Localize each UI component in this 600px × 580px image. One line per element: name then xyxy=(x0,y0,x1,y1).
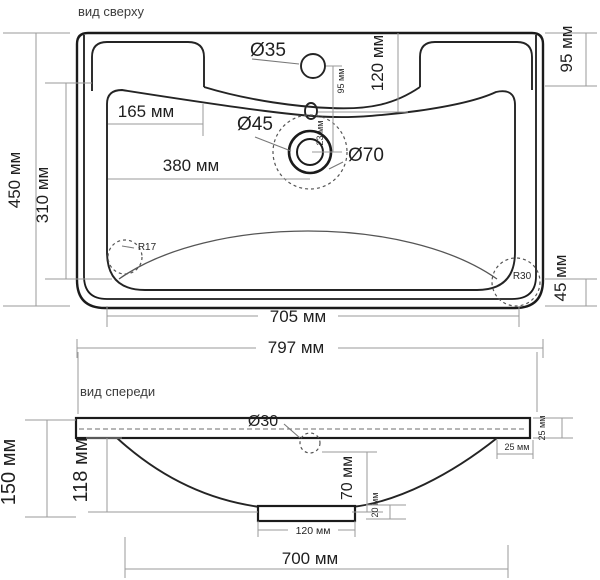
dim-bowl-width-700: 700 мм xyxy=(282,549,338,568)
dim-outer-depth-450: 450 мм xyxy=(5,152,24,208)
dim-drain-position-380: 380 мм xyxy=(163,156,219,175)
faucet-hole xyxy=(301,54,325,78)
technical-drawing: вид сверху xyxy=(0,0,600,580)
dim-shelf-depth-95: 95 мм xyxy=(557,25,576,72)
dim-total-height-150: 150 мм xyxy=(0,439,20,505)
dim-shelf-width-165: 165 мм xyxy=(118,102,174,121)
dim-slot-to-drain-23: 23 мм xyxy=(315,121,325,146)
rim-upper-line xyxy=(204,87,420,108)
dim-rim-thickness-25: 25 мм xyxy=(537,416,547,441)
dim-faucet-hole-diameter: Ø35 xyxy=(250,40,286,61)
dim-front-band-45: 45 мм xyxy=(551,254,570,301)
dim-bowl-depth-70: 70 мм xyxy=(339,456,356,500)
dim-flange-height-20: 20 мм xyxy=(370,493,380,518)
dim-back-offset-120: 120 мм xyxy=(368,35,387,91)
dim-basin-width-705: 705 мм xyxy=(270,307,326,326)
dim-drain-diameter-45: Ø45 xyxy=(237,114,273,135)
dim-radius-r17: R17 xyxy=(138,242,157,253)
front-view: вид спереди xyxy=(0,384,573,578)
dim-faucet-to-slot-95: 95 мм xyxy=(336,69,346,94)
bowl-slope-line xyxy=(119,231,497,279)
bowl-left-curve xyxy=(117,438,260,507)
dim-bowl-height-118: 118 мм xyxy=(70,438,92,503)
dim-drain-diameter-70: Ø70 xyxy=(348,145,384,166)
dim-overflow-diameter-30: Ø30 xyxy=(248,413,278,430)
front-view-label: вид спереди xyxy=(80,384,155,399)
top-view: вид сверху xyxy=(3,4,597,414)
leader-d70 xyxy=(329,162,343,169)
drawing-page: вид сверху xyxy=(0,0,600,580)
leader-d45 xyxy=(255,137,291,151)
leader-r17 xyxy=(122,246,134,248)
dim-outer-width-797: 797 мм xyxy=(268,338,324,357)
dim-flange-width-120: 120 мм xyxy=(296,525,331,537)
dim-rim-inset-25: 25 мм xyxy=(505,442,530,452)
left-shelf xyxy=(92,42,204,91)
drain-flange xyxy=(258,506,355,521)
dim-radius-r30: R30 xyxy=(513,271,532,282)
dim-basin-depth-310: 310 мм xyxy=(33,167,52,223)
rim-profile xyxy=(76,418,530,438)
top-view-label: вид сверху xyxy=(78,4,144,19)
right-shelf xyxy=(420,42,532,90)
